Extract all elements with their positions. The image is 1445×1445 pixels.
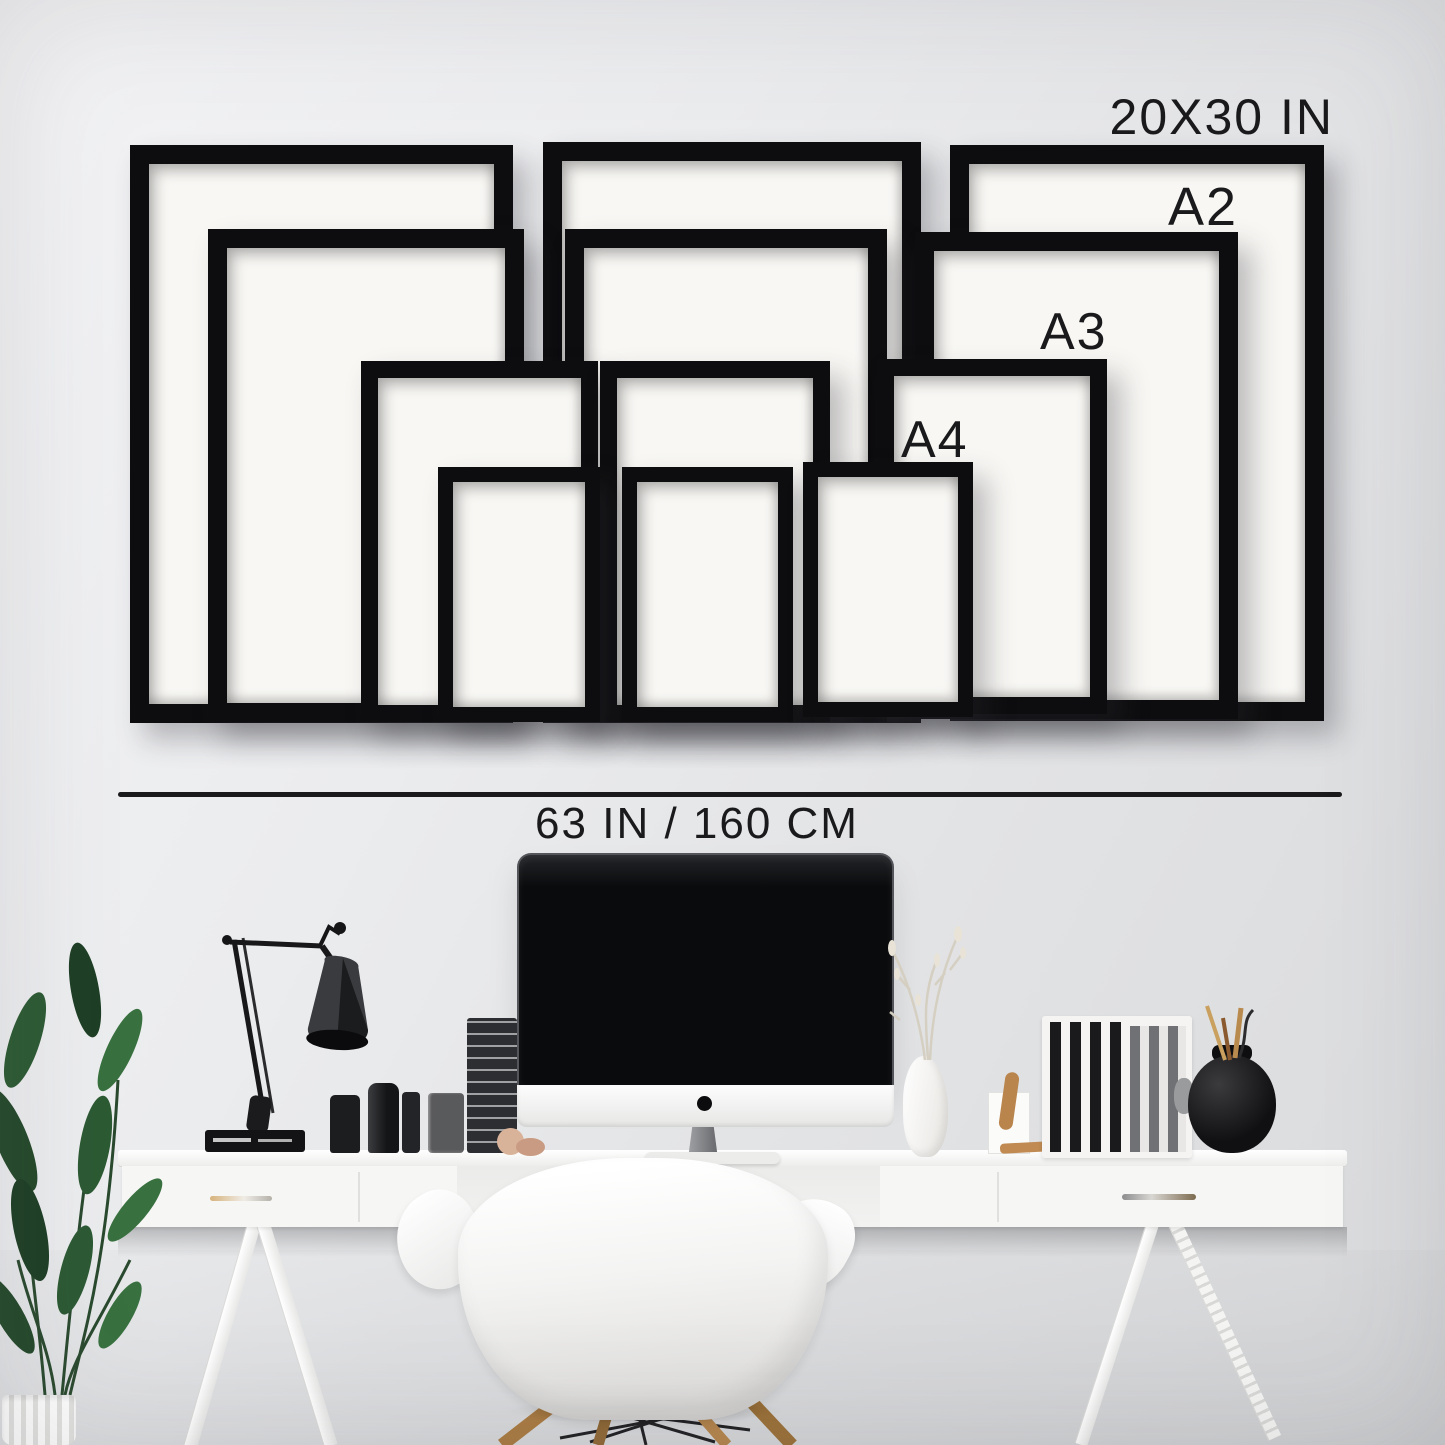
frame-a4-center xyxy=(622,467,793,722)
monitor-logo-dot xyxy=(697,1096,712,1111)
drawer-seam-right xyxy=(997,1172,999,1222)
drawer-seam-left xyxy=(358,1172,360,1222)
frame-a4-right xyxy=(803,462,973,717)
black-cup xyxy=(330,1095,360,1153)
black-books xyxy=(1050,1022,1130,1152)
white-vase xyxy=(903,1056,948,1157)
glass-bottle xyxy=(368,1083,399,1153)
acrylic-holder xyxy=(428,1093,464,1153)
size-label-a2: A2 xyxy=(1168,180,1238,234)
drawer-pull-right xyxy=(1122,1194,1196,1200)
shell-chair xyxy=(458,1158,828,1420)
black-round-vase xyxy=(1188,1055,1276,1153)
computer-monitor xyxy=(517,853,894,1085)
size-label-a3: A3 xyxy=(1040,306,1108,358)
frame-a4-left xyxy=(438,467,600,722)
size-label-20x30: 20X30 IN xyxy=(1098,92,1334,142)
room-scene: 20X30 IN A2 A3 A4 63 IN / 160 CM xyxy=(0,0,1445,1445)
drawer-pull-left xyxy=(210,1196,272,1201)
dried-branches xyxy=(880,920,1010,1080)
plant-pot xyxy=(2,1395,76,1445)
decor-stone-2 xyxy=(516,1138,545,1156)
desk-width-label: 63 IN / 160 CM xyxy=(447,802,947,846)
small-bottle xyxy=(402,1092,420,1153)
size-label-a4: A4 xyxy=(901,414,969,466)
measurement-line xyxy=(118,792,1342,797)
